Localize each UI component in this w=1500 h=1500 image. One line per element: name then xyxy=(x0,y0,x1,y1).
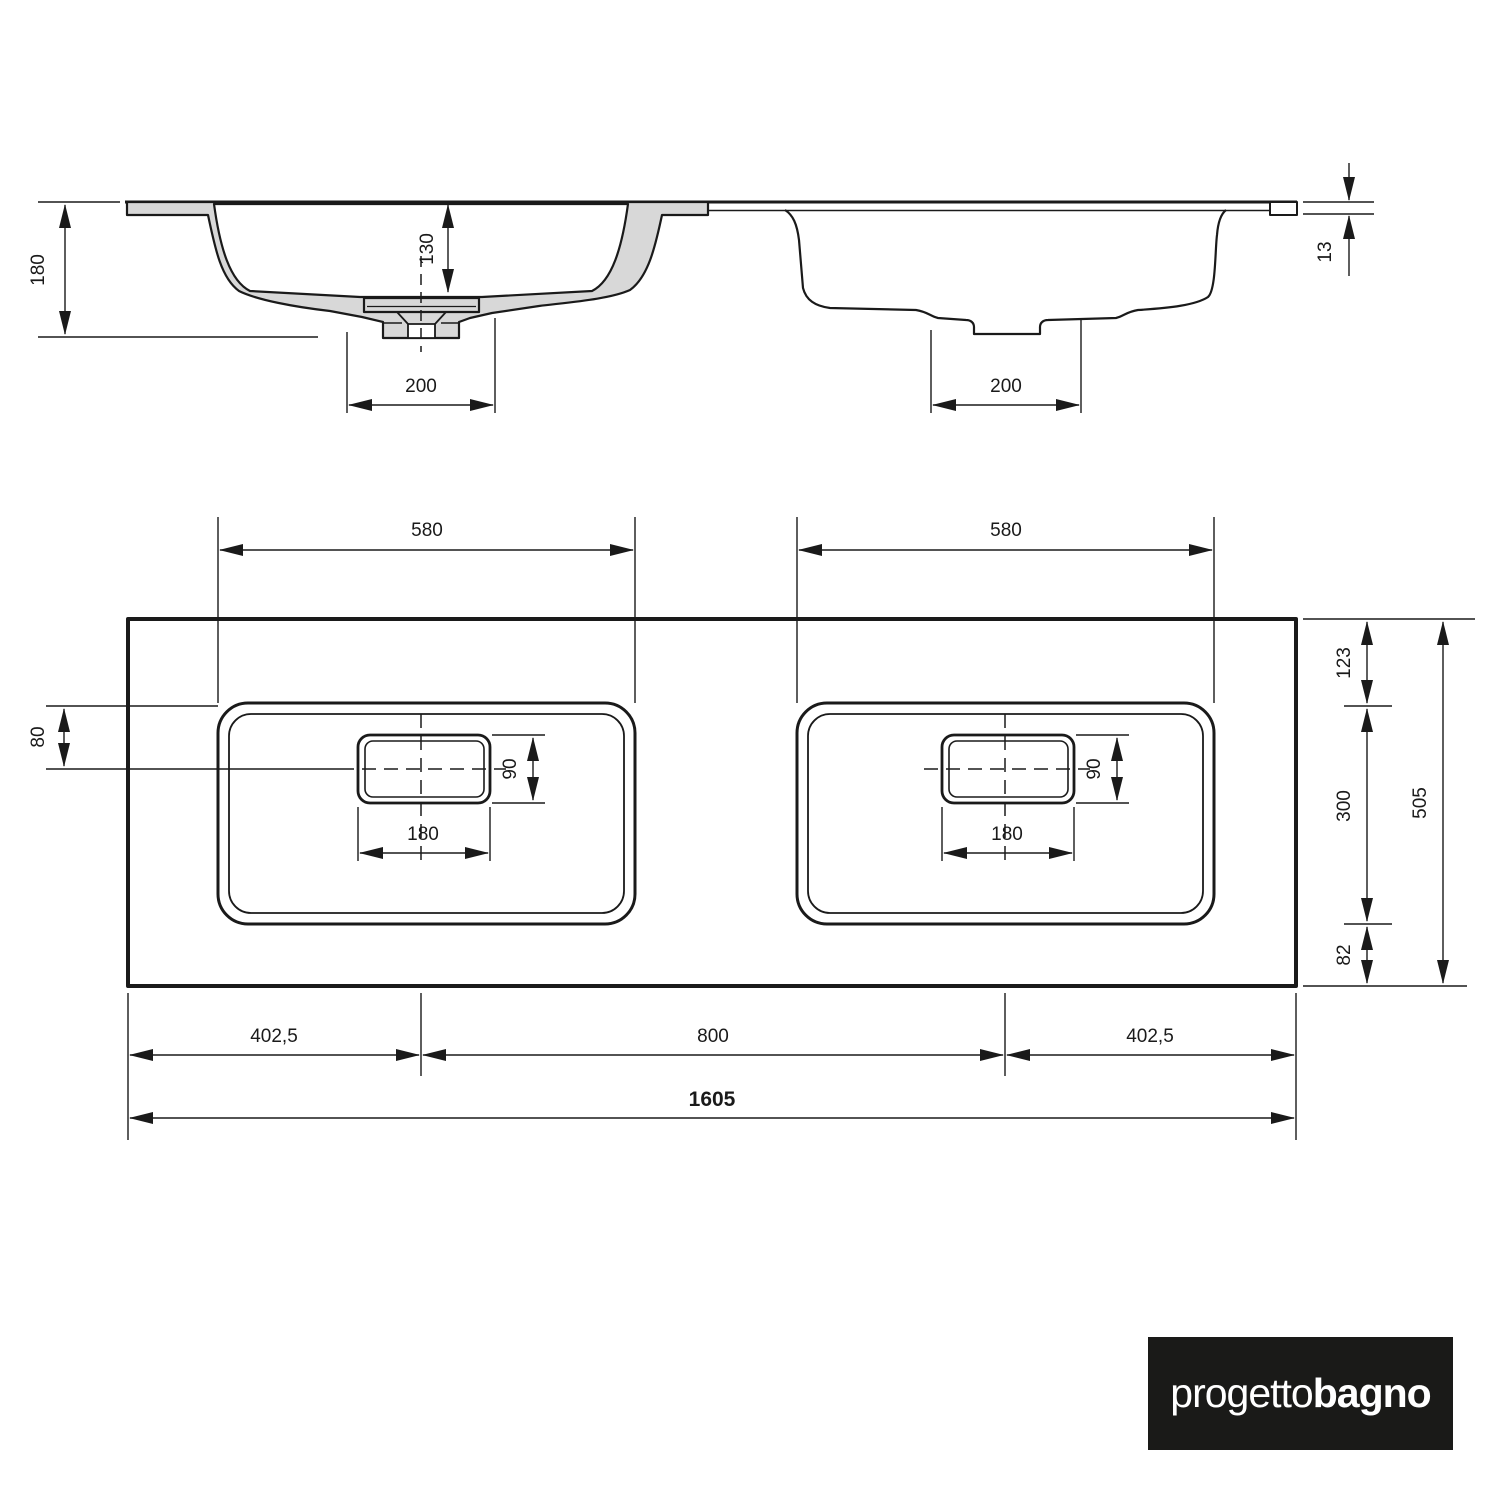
plan-dim-180-right-label: 180 xyxy=(991,824,1023,845)
right-basin-outline xyxy=(785,210,1226,334)
plan-dim-82-label: 82 xyxy=(1334,944,1355,965)
brand-logo: progettobagno xyxy=(1148,1337,1453,1450)
plan-dim-580-left-label: 580 xyxy=(411,520,443,541)
section-dim-200-right-label: 200 xyxy=(990,376,1022,397)
plan-dim-1605-label: 1605 xyxy=(689,1088,736,1111)
section-dim-13-label: 13 xyxy=(1315,241,1336,262)
plan-dim-800-label: 800 xyxy=(697,1026,729,1047)
plan-dim-123-label: 123 xyxy=(1334,647,1355,679)
section-view: 180 130 200 200 13 xyxy=(28,163,1374,413)
logo-text-regular: progetto xyxy=(1170,1370,1312,1417)
drain-right-outer xyxy=(942,735,1074,803)
plan-dim-90-right-label: 90 xyxy=(1084,758,1105,779)
plan-dim-505-label: 505 xyxy=(1410,787,1431,819)
technical-drawing: 180 130 200 200 13 xyxy=(0,0,1500,1500)
section-dim-180-label: 180 xyxy=(28,254,49,286)
section-dim-130-label: 130 xyxy=(417,233,438,265)
plan-dim-580-right-label: 580 xyxy=(990,520,1022,541)
plan-dim-180-left-label: 180 xyxy=(407,824,439,845)
plan-dim-402-right-label: 402,5 xyxy=(1126,1026,1174,1047)
plan-dim-402-left-label: 402,5 xyxy=(250,1026,298,1047)
drawing-sheet: 180 130 200 200 13 xyxy=(0,0,1500,1500)
countertop-end-cap xyxy=(1270,202,1297,215)
plan-dim-80-label: 80 xyxy=(28,726,49,747)
logo-text-bold: bagno xyxy=(1313,1370,1431,1417)
drain-left-outer xyxy=(358,735,490,803)
section-dim-200-left-label: 200 xyxy=(405,376,437,397)
plan-dim-90-left-label: 90 xyxy=(500,758,521,779)
plan-dim-300-label: 300 xyxy=(1334,790,1355,822)
plan-view: 580 580 80 90 90 180 180 xyxy=(28,517,1475,1140)
